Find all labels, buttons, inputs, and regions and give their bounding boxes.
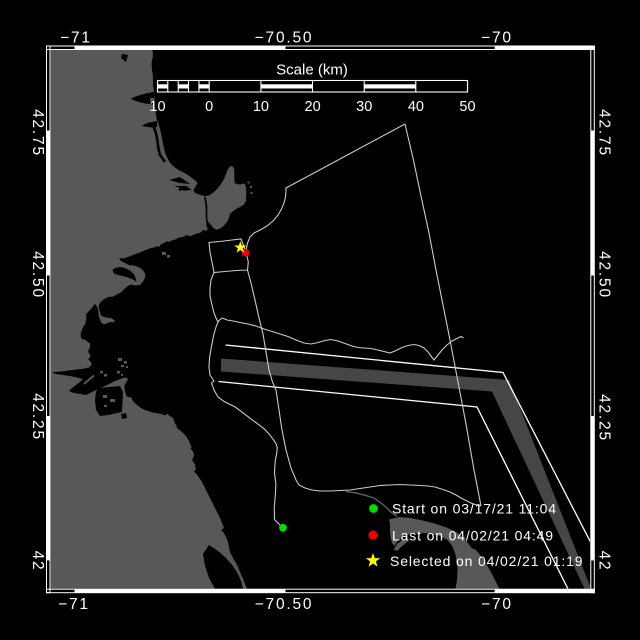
svg-text:42.25: 42.25 xyxy=(29,393,46,441)
svg-text:−70: −70 xyxy=(481,30,513,47)
svg-text:−71: −71 xyxy=(58,596,90,613)
svg-text:10: 10 xyxy=(253,99,269,115)
svg-text:42.25: 42.25 xyxy=(596,394,613,442)
svg-text:42: 42 xyxy=(596,551,613,572)
svg-text:Scale (km): Scale (km) xyxy=(276,62,348,79)
svg-text:0: 0 xyxy=(205,99,213,115)
svg-text:42: 42 xyxy=(29,551,46,572)
svg-text:42.50: 42.50 xyxy=(29,251,46,299)
svg-text:Selected on 04/02/21 01:19: Selected on 04/02/21 01:19 xyxy=(390,553,583,569)
svg-text:−70: −70 xyxy=(481,596,513,613)
svg-text:−70.50: −70.50 xyxy=(255,596,314,613)
svg-text:50: 50 xyxy=(459,99,475,115)
svg-text:Last on 04/02/21 04:49: Last on 04/02/21 04:49 xyxy=(392,527,554,543)
svg-text:20: 20 xyxy=(305,99,321,115)
svg-text:−71: −71 xyxy=(60,30,92,47)
svg-text:42.75: 42.75 xyxy=(596,109,613,157)
svg-text:30: 30 xyxy=(356,99,372,115)
svg-text:−70.50: −70.50 xyxy=(255,30,314,47)
svg-text:Start on 03/17/21 11:04: Start on 03/17/21 11:04 xyxy=(392,501,557,517)
svg-text:40: 40 xyxy=(408,99,424,115)
svg-text:42.50: 42.50 xyxy=(596,251,613,299)
svg-text:42.75: 42.75 xyxy=(29,109,46,157)
svg-text:10: 10 xyxy=(149,99,165,115)
